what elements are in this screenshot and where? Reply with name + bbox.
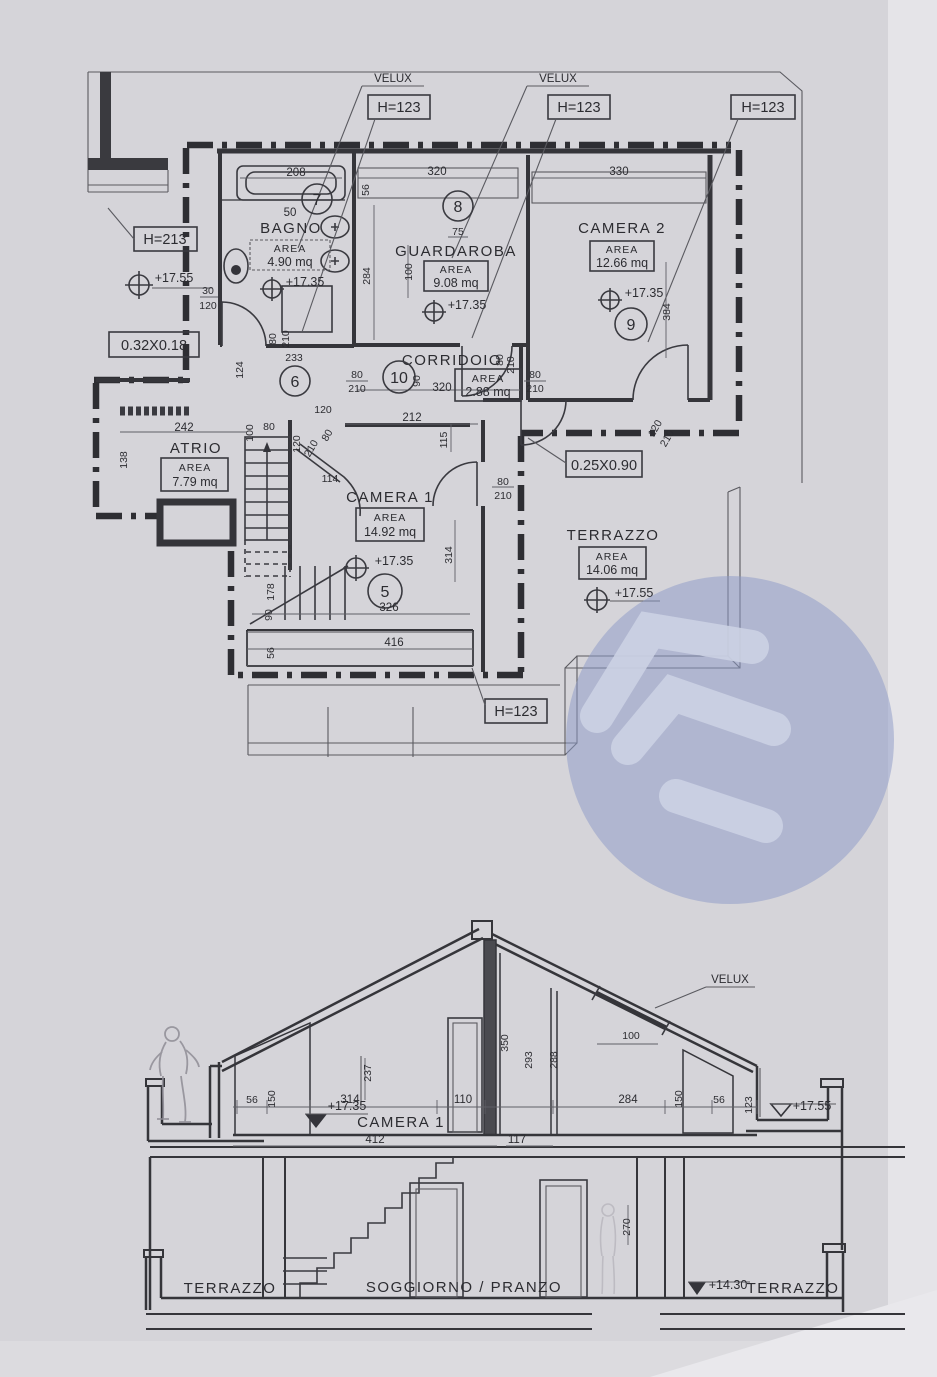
camera1-name: CAMERA 1 xyxy=(346,489,434,506)
dim-326: 326 xyxy=(379,602,398,614)
dim-a120v: 120 xyxy=(291,435,303,453)
dim-g320: 320 xyxy=(427,166,446,178)
dim-124: 124 xyxy=(234,361,246,379)
corridoio-area-label: AREA xyxy=(472,373,505,385)
dim-314: 314 xyxy=(443,546,455,564)
sdim-123: 123 xyxy=(743,1096,755,1114)
terrazzo-area-label: AREA xyxy=(596,551,629,563)
h123-badge-1: H=123 xyxy=(377,100,420,116)
camera2-level: +17.35 xyxy=(625,286,664,300)
bagno-level: +17.35 xyxy=(286,275,325,289)
dim-co210h: 210 xyxy=(526,383,544,395)
section-level-camera1-value: +17.35 xyxy=(328,1099,367,1113)
dim-212: 212 xyxy=(402,412,421,424)
dim-120b: 120 xyxy=(199,300,217,312)
terrazzo-area-value: 14.06 mq xyxy=(586,563,638,577)
dim-a120h: 120 xyxy=(314,404,332,416)
terrazzo-level: +17.55 xyxy=(615,586,654,600)
dim-50: 50 xyxy=(284,207,297,219)
guardaroba-area-value: 9.08 mq xyxy=(433,276,478,290)
camera2-number: 9 xyxy=(627,317,636,334)
sdim-117: 117 xyxy=(508,1134,526,1146)
guardaroba-name: GUARDAROBA xyxy=(395,243,517,260)
sdim-284: 284 xyxy=(618,1094,638,1106)
atrio-name: ATRIO xyxy=(170,440,222,457)
guardaroba-level: +17.35 xyxy=(448,298,487,312)
h123-badge-2: H=123 xyxy=(557,100,600,116)
dim-210-door: 210 xyxy=(280,330,292,348)
dim-a80: 80 xyxy=(263,421,275,433)
window-badge-left: 0.32X0.18 xyxy=(121,338,187,354)
sdim-237: 237 xyxy=(362,1064,374,1082)
section-terrazzo-left-label: TERRAZZO xyxy=(184,1280,277,1297)
section-terrazzo-right-label: TERRAZZO xyxy=(747,1280,840,1297)
atrio-area-value: 7.79 mq xyxy=(172,475,217,489)
dim-80-door: 80 xyxy=(267,333,279,345)
dim-co210l: 210 xyxy=(348,383,366,395)
bagno-area-value: 4.90 mq xyxy=(267,255,312,269)
dim-co80l: 80 xyxy=(351,369,363,381)
corridoio-area-value: 2.88 mq xyxy=(465,385,510,399)
bagno-area-label: AREA xyxy=(274,243,307,255)
dim-a100: 100 xyxy=(244,424,256,442)
section-soggiorno-label: SOGGIORNO / PRANZO xyxy=(366,1279,562,1296)
dim-138: 138 xyxy=(118,451,130,469)
dim-30: 30 xyxy=(202,285,214,297)
level-left-value: +17.55 xyxy=(155,271,194,285)
dim-90s: 90 xyxy=(263,609,275,621)
dim-242: 242 xyxy=(174,422,193,434)
bagno-number: 7 xyxy=(313,192,322,209)
h213-badge: H=213 xyxy=(143,232,186,248)
atrio-number: 6 xyxy=(291,374,300,391)
camera2-name: CAMERA 2 xyxy=(578,220,666,237)
velux-label-2: VELUX xyxy=(539,73,577,85)
h123-badge-3: H=123 xyxy=(741,100,784,116)
dim-co90: 90 xyxy=(411,375,423,387)
dim-384: 384 xyxy=(661,303,673,321)
sdim-150l: 150 xyxy=(266,1090,278,1108)
paper-edge-right xyxy=(888,0,937,1377)
dim-tub-208: 208 xyxy=(286,167,305,179)
camera1-area-label: AREA xyxy=(374,512,407,524)
dim-233: 233 xyxy=(285,352,303,364)
dim-c1-56: 56 xyxy=(265,647,277,659)
atrio-area-label: AREA xyxy=(179,462,212,474)
dim-co210r: 210 xyxy=(505,356,517,374)
velux-label-1: VELUX xyxy=(374,73,412,85)
dim-416: 416 xyxy=(384,637,403,649)
sdim-288: 288 xyxy=(548,1051,560,1069)
corridoio-number: 10 xyxy=(390,370,408,387)
dim-c1-210: 210 xyxy=(494,490,512,502)
camera1-level: +17.35 xyxy=(375,554,414,568)
corridoio-name: CORRIDOIO xyxy=(402,352,502,369)
camera2-area-label: AREA xyxy=(606,244,639,256)
sdim-350: 350 xyxy=(499,1034,511,1052)
dim-co320: 320 xyxy=(432,382,451,394)
dim-co80h: 80 xyxy=(529,369,541,381)
dim-c1-80: 80 xyxy=(497,476,509,488)
sdim-293: 293 xyxy=(523,1051,535,1069)
sdim-110: 110 xyxy=(454,1094,472,1106)
sdim-412: 412 xyxy=(365,1134,384,1146)
dim-g284: 284 xyxy=(361,267,373,285)
bagno-name: BAGNO xyxy=(260,220,322,237)
camera1-area-value: 14.92 mq xyxy=(364,525,416,539)
section-velux-label: VELUX xyxy=(711,974,749,986)
section-level-lower-value: +14.30 xyxy=(709,1278,748,1292)
sdim-270: 270 xyxy=(621,1218,633,1236)
sdim-56r: 56 xyxy=(713,1094,725,1106)
dim-114: 114 xyxy=(322,473,339,485)
dim-115: 115 xyxy=(438,431,450,448)
dim-g100: 100 xyxy=(403,263,415,281)
sdim-56l: 56 xyxy=(246,1094,258,1106)
dim-330: 330 xyxy=(609,166,628,178)
dim-g75: 75 xyxy=(452,226,464,238)
drawing-canvas: VELUX VELUX H=123 H=123 H=123 H=213 H=12… xyxy=(0,0,937,1377)
sdim-150r: 150 xyxy=(673,1090,685,1108)
dim-g56: 56 xyxy=(360,184,372,196)
dim-178: 178 xyxy=(265,583,277,601)
scanned-floorplan-page: VELUX VELUX H=123 H=123 H=123 H=213 H=12… xyxy=(0,0,937,1377)
camera1-number: 5 xyxy=(381,584,390,601)
terrazzo-name: TERRAZZO xyxy=(567,527,660,544)
h123-badge-4: H=123 xyxy=(494,704,537,720)
watermark-logo xyxy=(566,576,894,904)
camera2-area-value: 12.66 mq xyxy=(596,256,648,270)
section-level-right-value: +17.55 xyxy=(793,1099,832,1113)
section-camera1-label: CAMERA 1 xyxy=(357,1114,445,1131)
window-badge-right: 0.25X0.90 xyxy=(571,458,637,474)
guardaroba-area-label: AREA xyxy=(440,264,473,276)
sdim-100: 100 xyxy=(622,1030,640,1042)
guardaroba-number: 8 xyxy=(454,199,463,216)
